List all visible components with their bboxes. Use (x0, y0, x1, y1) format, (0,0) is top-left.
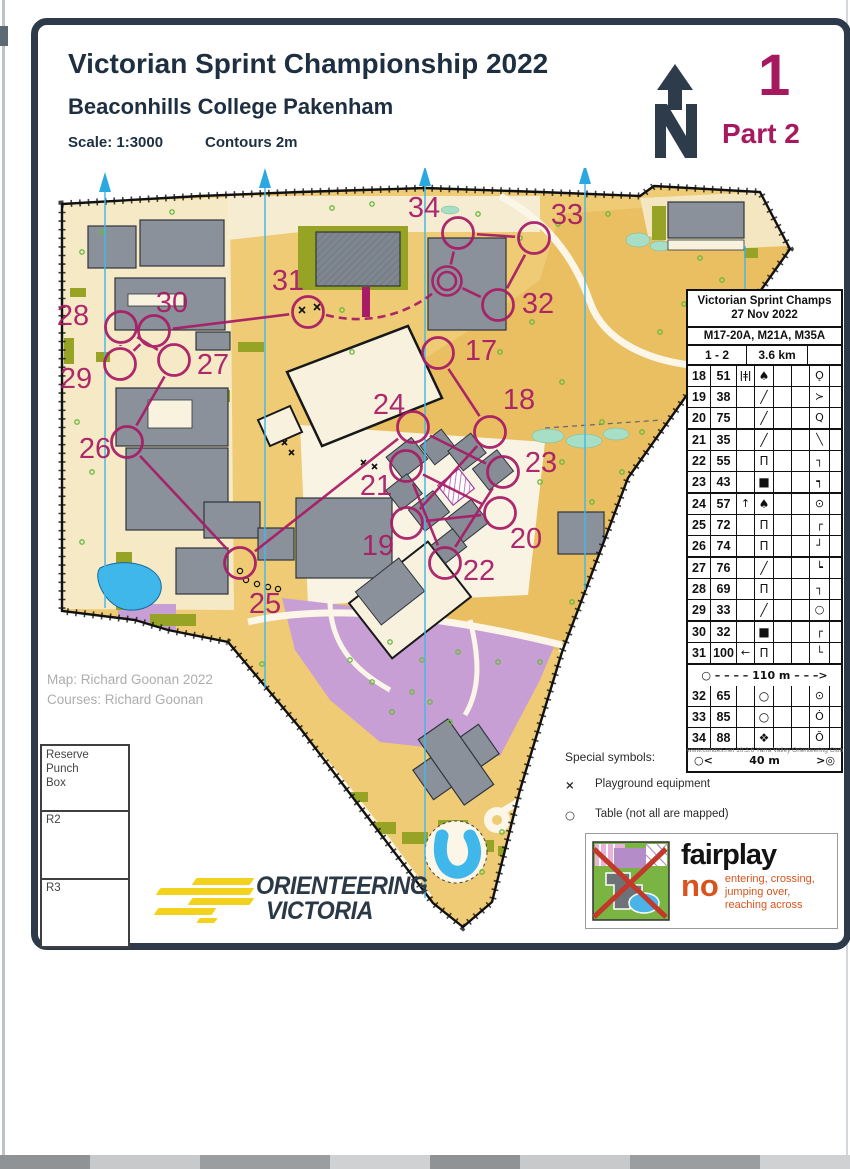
reserve-box-title: Reserve Punch Box (42, 746, 128, 810)
logo-stripe (196, 918, 218, 923)
card-control-rows: 1851ǀǂǀ♠Ǫ1938╱≻2075╱Q2135╱╲2255Π┐2343■┑2… (688, 366, 841, 663)
map-credits: Map: Richard Goonan 2022 Courses: Richar… (47, 670, 213, 711)
control-number-23: 23 (525, 447, 557, 479)
logo-stripe (154, 908, 217, 915)
control-number-20: 20 (510, 523, 542, 555)
control-number-22: 22 (463, 555, 495, 587)
reserve-cell-r2: R2 (42, 810, 128, 878)
control-number-34: 34 (408, 192, 440, 224)
card-course-row: 1 - 2 3.6 km (688, 346, 841, 366)
logo-stripe (192, 878, 255, 885)
courses-credit-line: Courses: Richard Goonan (47, 690, 213, 710)
map-credit-line: Map: Richard Goonan 2022 (47, 670, 213, 690)
fairplay-rules: entering, crossing, jumping over, reachi… (725, 873, 815, 912)
control-number-33: 33 (551, 199, 583, 231)
special-symbol-item: × Playground equipment (565, 778, 845, 792)
control-row-29: 2933╱○ (688, 599, 841, 620)
control-number-32: 32 (522, 288, 554, 320)
scan-mark (0, 26, 8, 46)
fairplay-map-thumbnail (592, 841, 672, 923)
control-row-25: 2572Π┌ (688, 514, 841, 535)
control-number-19: 19 (362, 530, 394, 562)
reserve-cell-r3: R3 (42, 878, 128, 946)
special-symbols-block: Special symbols: × Playground equipment … (565, 750, 845, 838)
control-row-26: 2674Π┘ (688, 535, 841, 556)
north-arrow-icon (645, 62, 705, 162)
control-number-31: 31 (272, 265, 304, 297)
special-symbols-heading: Special symbols: (565, 750, 845, 764)
map-exchange-bar (362, 287, 370, 317)
control-number-26: 26 (79, 433, 111, 465)
control-number-17: 17 (465, 335, 497, 367)
control-row-33: 3385○Ȯ (688, 706, 841, 727)
scan-edge-bottom (0, 1155, 850, 1169)
control-row-28: 2869Π┐ (688, 578, 841, 599)
card-classes: M17-20A, M21A, M35A (688, 328, 841, 346)
orienteering-victoria-logo: ORIENTEERING VICTORIA (148, 872, 448, 930)
contours-label: Contours 2m (205, 134, 298, 151)
playground-symbol: × (565, 778, 595, 792)
control-number-21: 21 (360, 470, 392, 502)
scale-label: Scale: 1:3000 (68, 134, 163, 151)
control-row-19: 1938╱≻ (688, 386, 841, 407)
logo-stripe (156, 888, 255, 895)
logo-stripe (188, 898, 255, 905)
control-row-31: 31100←Π└ (688, 642, 841, 663)
card-exchange-row: ○ – – – – 110 m – – –> (688, 663, 841, 686)
page-title: Victorian Sprint Championship 2022 (68, 48, 548, 80)
card-length: 3.6 km (747, 346, 808, 364)
table-label: Table (not all are mapped) (595, 808, 729, 822)
fairplay-title: fairplay (681, 841, 815, 870)
control-row-30: 3032■┌ (688, 620, 841, 642)
part-label: Part 2 (722, 118, 800, 150)
control-number-27: 27 (197, 349, 229, 381)
card-course: 1 - 2 (688, 346, 747, 364)
control-row-20: 2075╱Q (688, 407, 841, 428)
logo-line2: VICTORIA (266, 897, 373, 926)
card-title: Victorian Sprint Champs 27 Nov 2022 (688, 291, 841, 328)
fairplay-box: fairplay no entering, crossing, jumping … (585, 833, 838, 929)
fairplay-no: no (681, 872, 719, 912)
control-description-card: Victorian Sprint Champs 27 Nov 2022 M17-… (686, 289, 843, 773)
control-row-23: 2343■┑ (688, 471, 841, 492)
playground-label: Playground equipment (595, 778, 710, 792)
control-number-24: 24 (373, 389, 405, 421)
control-row-21: 2135╱╲ (688, 428, 841, 450)
control-number-28: 28 (57, 300, 89, 332)
card-control-rows-2: 3265○⊙3385○Ȯ3488❖Ŏ (688, 686, 841, 748)
reserve-punch-box: Reserve Punch Box R2 R3 (40, 744, 130, 948)
control-row-24: 2457↑♠⊙ (688, 492, 841, 514)
control-row-22: 2255Π┐ (688, 450, 841, 471)
special-symbol-item: ○ Table (not all are mapped) (565, 808, 845, 822)
course-number: 1 (758, 42, 790, 109)
control-number-29: 29 (60, 363, 92, 395)
control-number-25: 25 (249, 588, 281, 620)
page-subtitle: Beaconhills College Pakenham (68, 94, 393, 120)
control-row-27: 2776╱┕ (688, 556, 841, 578)
scan-edge-left (2, 0, 5, 1155)
control-number-30: 30 (156, 287, 188, 319)
control-row-32: 3265○⊙ (688, 686, 841, 706)
table-symbol: ○ (565, 808, 595, 822)
control-row-34: 3488❖Ŏ (688, 727, 841, 748)
scanned-orienteering-map-page: Victorian Sprint Championship 2022 Beaco… (0, 0, 850, 1169)
north-line-arrows (99, 168, 591, 192)
control-number-18: 18 (503, 384, 535, 416)
control-row-18: 1851ǀǂǀ♠Ǫ (688, 366, 841, 386)
